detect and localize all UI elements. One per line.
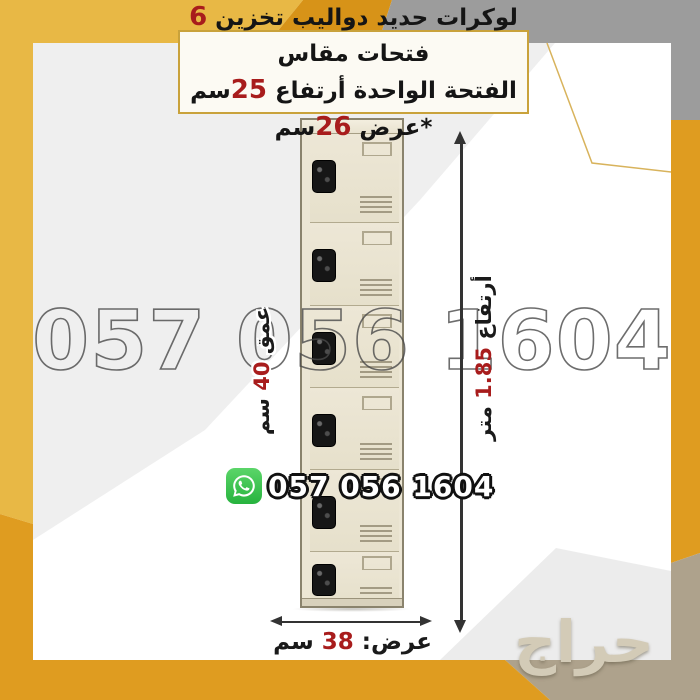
whatsapp-icon xyxy=(226,468,262,504)
label-holder-icon xyxy=(362,556,392,570)
locker-door-1 xyxy=(310,134,399,222)
height-arrow-line xyxy=(460,142,463,622)
vent-grille-icon xyxy=(360,443,392,463)
width-value: 38 xyxy=(322,629,354,655)
width-dimension-label: عرض: 38 سم xyxy=(260,629,445,655)
arrow-right-icon xyxy=(420,616,432,626)
width-arrow-line xyxy=(280,621,422,624)
locker-base xyxy=(302,598,402,606)
whatsapp-glyph xyxy=(231,473,257,499)
phone-watermark: 057 056 1604 xyxy=(30,294,674,389)
vent-grille-icon xyxy=(360,525,392,545)
height-value: 1.85 xyxy=(472,347,496,399)
opening-width-cm: 26 xyxy=(315,112,351,142)
arrow-left-icon xyxy=(270,616,282,626)
haraj-logo-watermark: حراج xyxy=(468,608,700,676)
locker-door-4 xyxy=(310,387,399,469)
whatsapp-contact[interactable]: 057 056 1604 xyxy=(226,468,494,504)
height-dimension-label: أرتفاع 1.85 متر xyxy=(472,273,496,443)
description-line-2: الفتحة الواحدة أرتفاع 25سم *عرض 26سم xyxy=(180,72,527,146)
whatsapp-number: 057 056 1604 xyxy=(268,470,494,503)
lock-handle-icon xyxy=(312,414,336,447)
vent-grille-icon xyxy=(360,587,392,597)
vent-grille-icon xyxy=(360,196,392,216)
ad-image: لوكرات حديد دواليب تخزين 6 فتحات مقاس ال… xyxy=(0,0,700,700)
locker-door-2 xyxy=(310,222,399,305)
lock-handle-icon xyxy=(312,160,336,193)
arrow-down-icon xyxy=(454,620,466,633)
depth-dimension-label: عمق 40 سم xyxy=(250,306,274,436)
description-box: لوكرات حديد دواليب تخزين 6 فتحات مقاس ال… xyxy=(178,30,529,114)
description-line-1: لوكرات حديد دواليب تخزين 6 فتحات مقاس xyxy=(180,0,527,72)
locker-door-6 xyxy=(310,551,399,603)
opening-height-cm: 25 xyxy=(231,75,267,105)
openings-count: 6 xyxy=(189,2,207,32)
lock-handle-icon xyxy=(312,249,336,282)
frame-orange-right xyxy=(671,120,700,563)
label-holder-icon xyxy=(362,396,392,410)
label-holder-icon xyxy=(362,231,392,245)
lock-handle-icon xyxy=(312,564,336,596)
depth-value: 40 xyxy=(250,362,274,391)
